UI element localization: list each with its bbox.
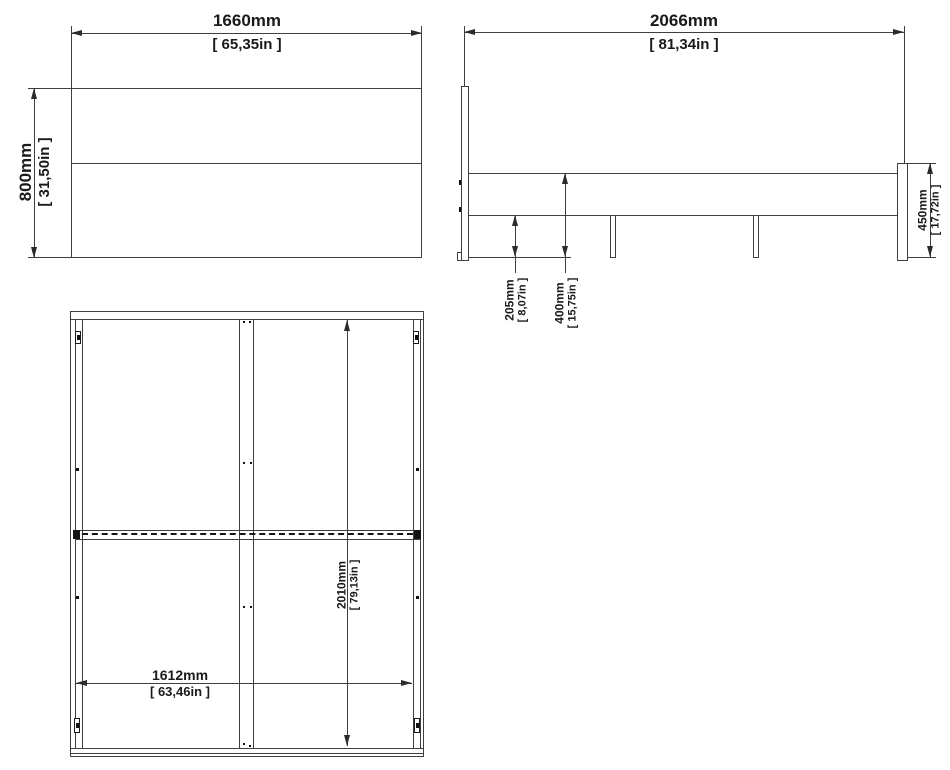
cross-support-end-block <box>73 530 80 539</box>
floor-line <box>469 257 571 258</box>
arrowhead-down-icon <box>562 246 568 257</box>
arrowhead-up-icon <box>562 173 568 184</box>
fastener-mark <box>416 596 419 599</box>
side-rail-top-line <box>469 173 898 174</box>
cross-support-line <box>75 539 420 540</box>
slat-clearance-in-label: [ 8,07in ] <box>517 278 530 323</box>
dimension-line <box>71 33 422 34</box>
footboard-height-mm-label: 450mm <box>915 185 929 236</box>
arrowhead-right-icon <box>401 680 412 686</box>
headboard-height-label: 800mm [ 31,50in ] <box>16 137 54 206</box>
extension-line <box>464 26 465 86</box>
fastener-mark <box>250 606 252 608</box>
fastener-mark <box>243 462 245 464</box>
arrowhead-up-icon <box>31 88 37 99</box>
footboard-edge-line <box>71 753 423 754</box>
slat-clearance-mm-label: 205mm <box>502 278 516 323</box>
arrowhead-down-icon <box>927 246 933 257</box>
headboard-edge-line <box>71 319 423 320</box>
fastener-mark <box>250 462 252 464</box>
bracket-slot <box>416 723 419 728</box>
fastener-mark <box>76 596 79 599</box>
fastener-mark <box>243 321 245 323</box>
fastener-mark <box>76 468 79 471</box>
arrowhead-down-icon <box>512 246 518 257</box>
bed-frame-technical-drawing: 1660mm [ 65,35in ] 800mm [ 31,50in ] 206… <box>0 0 950 770</box>
fastener-mark <box>243 606 245 608</box>
slat-clearance-label: 205mm [ 8,07in ] <box>502 278 529 323</box>
arrowhead-right-icon <box>411 30 422 36</box>
arrowhead-up-icon <box>927 163 933 174</box>
rail-height-mm-label: 400mm <box>552 278 566 329</box>
arrowhead-down-icon <box>344 735 350 746</box>
headboard-foot-pad <box>457 252 462 261</box>
cross-support-end-block <box>414 530 421 539</box>
bracket-slot <box>76 723 79 728</box>
bracket-slot <box>77 335 80 340</box>
cross-support-line <box>75 530 420 531</box>
headboard-width-mm-label: 1660mm <box>213 12 281 29</box>
bed-leg <box>753 215 759 258</box>
bed-length-mm-label: 2066mm <box>650 12 718 29</box>
headboard-height-in-label: [ 31,50in ] <box>36 137 54 206</box>
headboard-height-mm-label: 800mm <box>16 137 36 206</box>
headboard-outline <box>71 88 422 258</box>
extension-line <box>908 257 936 258</box>
inner-length-in-label: [ 79,13in ] <box>349 560 362 611</box>
side-rail-bottom-line <box>469 215 898 216</box>
dimension-line <box>565 173 566 273</box>
arrowhead-left-icon <box>464 29 475 35</box>
fastener-mark <box>249 745 251 747</box>
headboard-panel-line <box>71 163 422 164</box>
inner-width-in-label: [ 63,46in ] <box>150 685 210 698</box>
fastener-mark <box>459 207 461 212</box>
arrowhead-up-icon <box>512 215 518 226</box>
fastener-mark <box>243 743 245 745</box>
rail-height-label: 400mm [ 15,75in ] <box>552 278 579 329</box>
headboard-width-in-label: [ 65,35in ] <box>212 37 281 52</box>
arrowhead-right-icon <box>893 29 904 35</box>
dimension-line <box>464 32 904 33</box>
fastener-mark <box>416 468 419 471</box>
rail-height-in-label: [ 15,75in ] <box>567 278 580 329</box>
fastener-mark <box>459 180 461 185</box>
footboard-edge-line <box>71 748 423 749</box>
extension-line <box>904 26 905 163</box>
footboard-height-in-label: [ 17,72in ] <box>930 185 943 236</box>
headboard-side-outline <box>461 86 469 261</box>
arrowhead-up-icon <box>344 320 350 331</box>
bed-length-in-label: [ 81,34in ] <box>649 37 718 52</box>
inner-width-mm-label: 1612mm <box>152 668 208 682</box>
fastener-mark <box>249 321 251 323</box>
inner-length-label: 2010mm [ 79,13in ] <box>334 560 361 611</box>
cross-support-hatch <box>82 533 413 535</box>
footboard-height-label: 450mm [ 17,72in ] <box>915 185 942 236</box>
arrowhead-down-icon <box>31 247 37 258</box>
inner-length-mm-label: 2010mm <box>334 560 348 611</box>
footboard-side-outline <box>897 163 908 261</box>
arrowhead-left-icon <box>71 30 82 36</box>
dimension-line <box>76 683 412 684</box>
bed-leg <box>610 215 616 258</box>
bracket-slot <box>415 335 418 340</box>
arrowhead-left-icon <box>76 680 87 686</box>
